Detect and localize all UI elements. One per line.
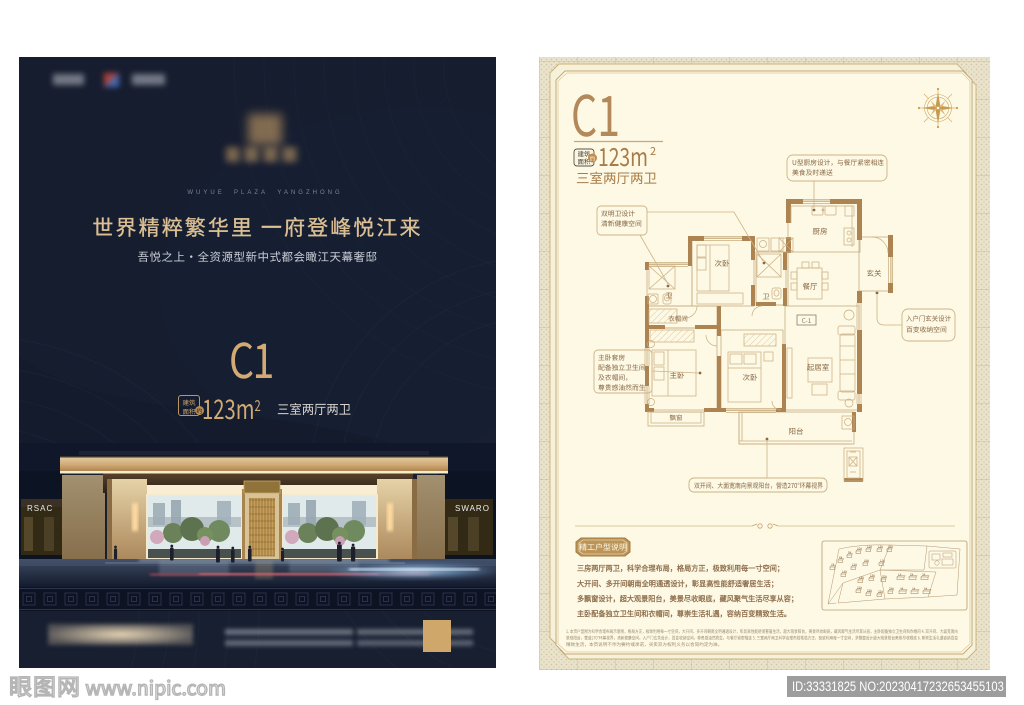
svg-text:约: 约 (590, 154, 596, 162)
svg-text:23#: 23# (878, 589, 883, 593)
svg-text:9#: 9# (848, 550, 852, 554)
svg-text:11#: 11# (867, 544, 872, 548)
svg-text:4#: 4# (900, 586, 904, 590)
svg-text:飘窗: 飘窗 (670, 412, 683, 422)
svg-text:及衣帽间，: 及衣帽间， (598, 372, 632, 382)
svg-text:尊贵感油然而生: 尊贵感油然而生 (598, 382, 646, 392)
svg-text:12#: 12# (878, 544, 883, 548)
svg-text:U型厨房设计，与餐厅紧密相连: U型厨房设计，与餐厅紧密相连 (792, 157, 884, 167)
svg-text:主卧配备独立卫生间和衣帽间，尊崇生活礼遇，容纳百变精致生活。: 主卧配备独立卫生间和衣帽间，尊崇生活礼遇，容纳百变精致生活。 (577, 609, 791, 620)
svg-text:22#: 22# (867, 588, 872, 592)
svg-text:1#: 1# (898, 572, 902, 576)
svg-text:13#: 13# (888, 544, 893, 548)
svg-text:10#: 10# (857, 546, 862, 550)
svg-text:2#: 2# (910, 572, 914, 576)
svg-text:清新健康空间: 清新健康空间 (601, 218, 642, 228)
svg-text:多飘窗设计，超大观景阳台，美景尽收眼底，藏风聚气生活尽享从容: 多飘窗设计，超大观景阳台，美景尽收眼底，藏风聚气生活尽享从容； (577, 594, 798, 605)
svg-text:18#: 18# (859, 575, 864, 579)
svg-text:次卧: 次卧 (743, 372, 758, 383)
svg-text:衣帽间: 衣帽间 (668, 313, 688, 323)
svg-text:三房两厅两卫，科学合理布局，格局方正，极致利用每一寸空间；: 三房两厅两卫，科学合理布局，格局方正，极致利用每一寸空间； (577, 563, 784, 574)
svg-text:百变收纳空间: 百变收纳空间 (906, 324, 947, 334)
svg-text:7#: 7# (831, 562, 835, 566)
svg-text:卫: 卫 (763, 292, 770, 302)
svg-text:16#: 16# (864, 558, 869, 562)
svg-text:大开间、多开间朝南全明通透设计，彰显高性能舒适奢居生活；: 大开间、多开间朝南全明通透设计，彰显高性能舒适奢居生活； (577, 579, 778, 590)
svg-text:C-1: C-1 (802, 315, 812, 325)
svg-text:精工户型说明: 精工户型说明 (579, 542, 627, 553)
svg-text:三室两厅两卫: 三室两厅两卫 (576, 167, 657, 187)
svg-text:阳台: 阳台 (789, 426, 804, 437)
svg-text:厨房: 厨房 (813, 226, 828, 237)
svg-text:19#: 19# (870, 573, 875, 577)
svg-text:卫: 卫 (666, 291, 673, 301)
svg-text:配备独立卫生间: 配备独立卫生间 (598, 362, 646, 372)
svg-text:起居室: 起居室 (807, 362, 830, 373)
svg-text:次卧: 次卧 (715, 258, 730, 269)
svg-text:20#: 20# (882, 574, 887, 578)
svg-text:15#: 15# (852, 562, 857, 566)
svg-text:美食及时递送: 美食及时递送 (792, 167, 833, 177)
svg-text:双开间、大面宽南向景观阳台，营造270°环幕视界: 双开间、大面宽南向景观阳台，营造270°环幕视界 (694, 480, 823, 490)
svg-text:14#: 14# (842, 569, 847, 573)
svg-text:玄关: 玄关 (867, 268, 882, 279)
svg-text:双明卫设计: 双明卫设计 (601, 208, 635, 218)
svg-text:餐厅: 餐厅 (803, 281, 818, 292)
svg-text:主卧套房: 主卧套房 (598, 352, 625, 362)
svg-text:24#: 24# (889, 586, 894, 590)
svg-text:5#: 5# (912, 586, 916, 590)
svg-text:精致生活，本页说明不作为要约或承诺，买卖双方权利义务以合同约: 精致生活，本页说明不作为要约或承诺，买卖双方权利义务以合同约定为准。 (566, 642, 722, 648)
svg-text:8#: 8# (839, 555, 843, 559)
svg-text:1. 本页户型图为科学合理布局示意图，格局方正，极致利用每一: 1. 本页户型图为科学合理布局示意图，格局方正，极致利用每一寸空间，大开间、多开… (566, 629, 958, 635)
svg-text:3#: 3# (922, 572, 926, 576)
svg-text:景观阳台，营造270°环幕视界，清新健康空间，入户门玄关设计: 景观阳台，营造270°环幕视界，清新健康空间，入户门玄关设计，百变收纳空间，尊贵… (566, 636, 958, 642)
svg-text:17#: 17# (880, 558, 885, 562)
svg-text:入户门玄关设计: 入户门玄关设计 (906, 313, 951, 323)
svg-text:6#: 6# (924, 586, 928, 590)
svg-text:21#: 21# (857, 585, 862, 589)
svg-text:2: 2 (650, 143, 656, 159)
